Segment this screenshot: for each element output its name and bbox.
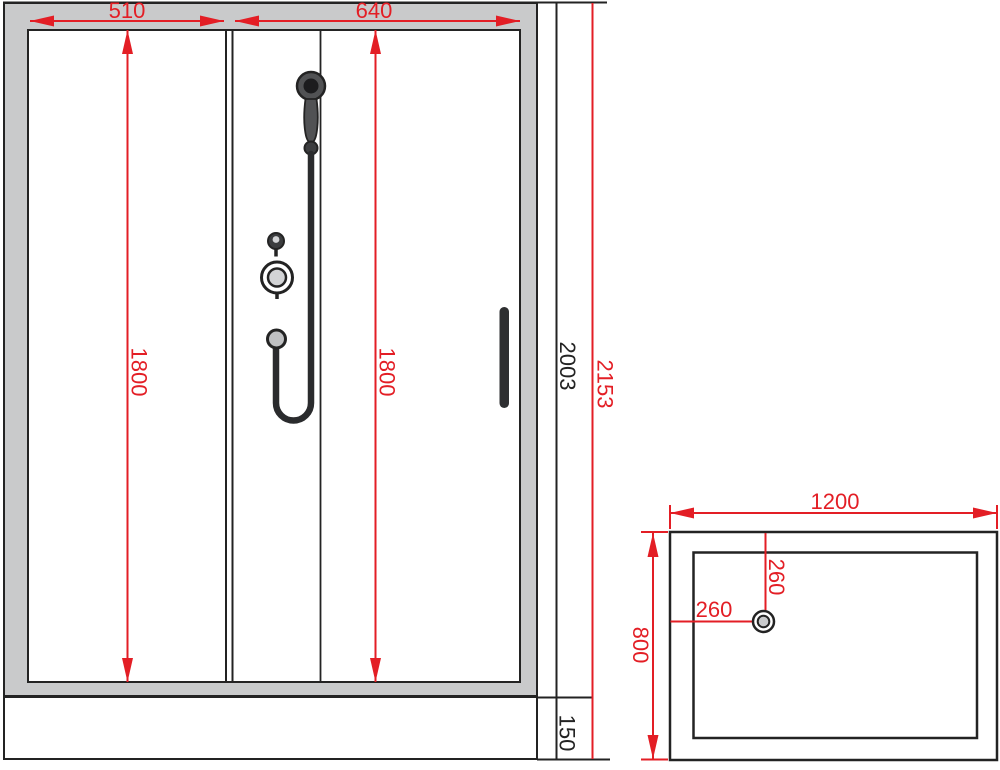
tray-apron [4,697,537,759]
shower-head-face [304,79,319,94]
dim-260-horizontal: 260 [696,597,733,622]
mixer-valve-inner [268,269,286,287]
dim-2153: 2153 [593,360,618,409]
diverter-knob-center [273,236,280,243]
shower-column [262,72,326,421]
dim-1200: 1200 [811,489,860,514]
dim-800: 800 [628,627,653,664]
dim-1800-right: 1800 [375,348,400,397]
dim-2003: 2003 [555,342,580,391]
drawing-svg: 510 640 1800 1800 2003 2153 150 [0,0,1000,770]
front-view: 510 640 1800 1800 2003 2153 150 [3,0,618,760]
dim-260-vertical: 260 [764,559,789,596]
dim-640: 640 [356,0,393,23]
top-view: 1200 800 260 260 [628,489,997,760]
hose-outlet [268,330,286,348]
technical-drawing: 510 640 1800 1800 2003 2153 150 [0,0,1000,770]
cabin-frame [4,3,537,696]
tray-outer [670,532,997,760]
shower-handle [304,99,318,143]
dim-510: 510 [109,0,146,23]
dim-150: 150 [555,715,580,752]
dim-1800-left: 1800 [127,348,152,397]
drain-inner [758,616,770,628]
door-handle [500,307,510,408]
